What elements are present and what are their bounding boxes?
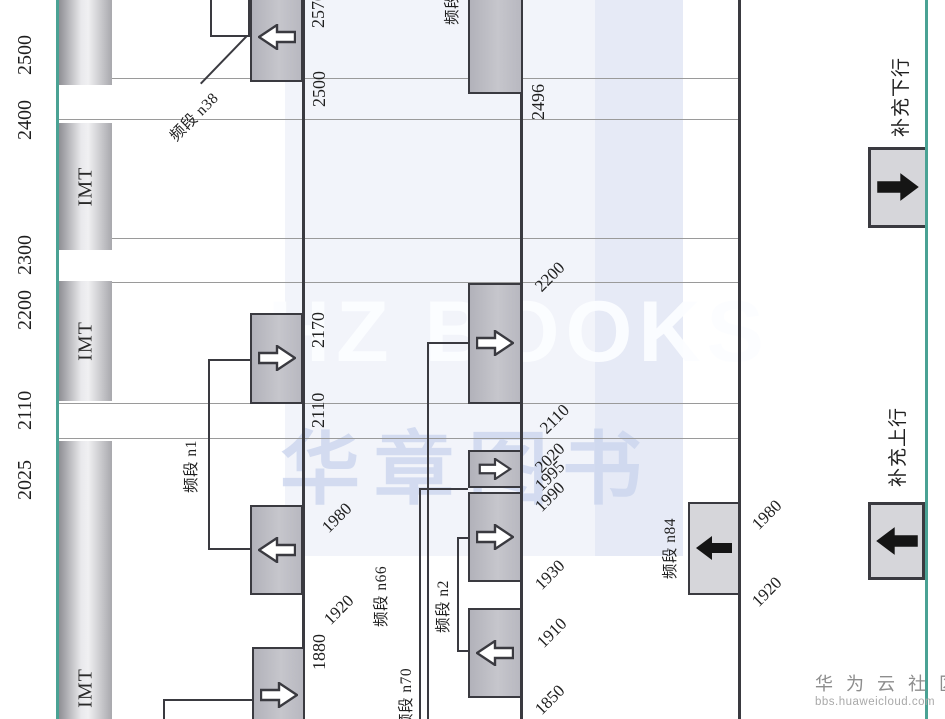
uplink-arrow-icon [258,24,296,50]
band-n84-label: 频段 n84 [658,502,680,595]
band-n7-ul-box [250,0,303,82]
n66-bracket-line [427,342,429,719]
downlink-arrow-icon [258,346,296,372]
band-n2-label: 频段 n2 [431,580,453,633]
uplink-arrow-icon [476,640,514,666]
uplink-arrow-black-icon [695,535,733,563]
tick-2200: 2200 [14,290,37,330]
gridline-2500 [58,78,740,79]
row2-tick-1850: 1850 [531,681,569,719]
imt-bar-2500 [59,0,112,85]
legend-downlink-box [868,147,928,228]
n3-connector-vertical [163,699,253,701]
imt-bar-below-2025: IMT [59,441,112,719]
tick-2500: 2500 [14,35,37,75]
band-n1-ul-box [250,505,303,595]
row1-tick-1980: 1980 [318,499,356,537]
row3-axis-line [738,0,741,719]
downlink-arrow-icon [260,682,298,708]
legend-downlink-label: 补充下行 [886,57,913,137]
n70-bracket-line [419,488,421,719]
imt-label: IMT [74,167,97,207]
downlink-arrow-black-icon [876,173,920,203]
band-n66-dl-box [468,283,522,404]
row2-tick-2110: 2110 [536,400,574,438]
row3-tick-1980: 1980 [748,496,786,534]
gridline-2110 [58,403,740,404]
row2-tick-2496: 2496 [528,84,549,120]
n1-bracket-stub-dl [208,359,252,361]
band-n38-box [210,0,250,37]
site-watermark-title: 华 为 云 社 区 [815,670,945,696]
row1-tick-1880: 1880 [309,634,330,670]
row1-tick-2500: 2500 [309,71,330,107]
n3-connector-horizontal [163,700,165,719]
gridline-2300 [58,238,740,239]
site-watermark-url: bbs.huaweicloud.com [815,696,945,708]
band-n66-label: 频段 n66 [369,566,391,627]
downlink-arrow-icon [476,458,514,480]
legend-uplink-box [868,502,925,580]
site-watermark: 华 为 云 社 区 bbs.huaweicloud.com [815,670,945,708]
row1-tick-2570: 2570 [308,0,329,28]
n2-bracket-stub-dl [457,537,468,539]
frequency-band-diagram: 2500 2400 2300 2200 2110 2025 IMT IMT IM… [0,0,945,719]
band-n2-dl-box [468,492,522,582]
band-n38-label: 频段 n38 [164,87,223,146]
row2-tick-1930: 1930 [531,556,569,594]
imt-label: IMT [74,321,97,361]
n66-bracket-stub [427,342,468,344]
tick-2400: 2400 [14,100,37,140]
band-n41-box [468,0,523,94]
row2-tick-2200: 2200 [531,258,569,296]
tick-2110: 2110 [14,391,37,430]
n2-bracket-stub-ul [457,650,468,652]
band-n70-label: 频段 n70 [394,668,416,719]
downlink-arrow-icon [476,331,514,357]
legend-uplink-label: 补充上行 [883,407,910,487]
band-n2-ul-box [468,608,522,698]
band-n84-sul-box [688,502,740,595]
row3-tick-1920: 1920 [748,573,786,611]
row1-tick-1920: 1920 [320,591,358,629]
imt-bar-2110-2200: IMT [59,281,112,401]
tick-2300: 2300 [14,235,37,275]
figure-canvas: HZ BOOKS 华章图书 2500 2400 2300 2200 2110 2… [0,0,945,719]
band-n41-label: 频段 n41 [440,0,462,25]
gridline-2025 [58,438,740,439]
band-n1-dl-box [250,313,303,404]
tick-2025: 2025 [14,460,37,500]
n70-bracket-stub [419,488,468,490]
bottom-border-line [925,0,928,719]
n2-bracket-line [457,537,459,652]
uplink-arrow-black-icon [875,526,919,556]
row1-tick-2170: 2170 [308,312,329,348]
row2-tick-1910: 1910 [533,614,571,652]
band-n70-dl-box [468,450,522,488]
imt-label: IMT [74,668,97,708]
imt-bar-2300-2400: IMT [59,123,112,250]
n1-bracket-line [208,359,210,549]
uplink-arrow-icon [258,537,296,563]
n1-bracket-stub-ul [208,548,252,550]
band-n3-dl-box [252,647,305,719]
gridline-2200 [58,282,740,283]
gridline-2400 [58,119,740,120]
downlink-arrow-icon [476,524,514,550]
band-n1-label: 频段 n1 [179,440,201,493]
row1-tick-2110: 2110 [308,393,329,428]
